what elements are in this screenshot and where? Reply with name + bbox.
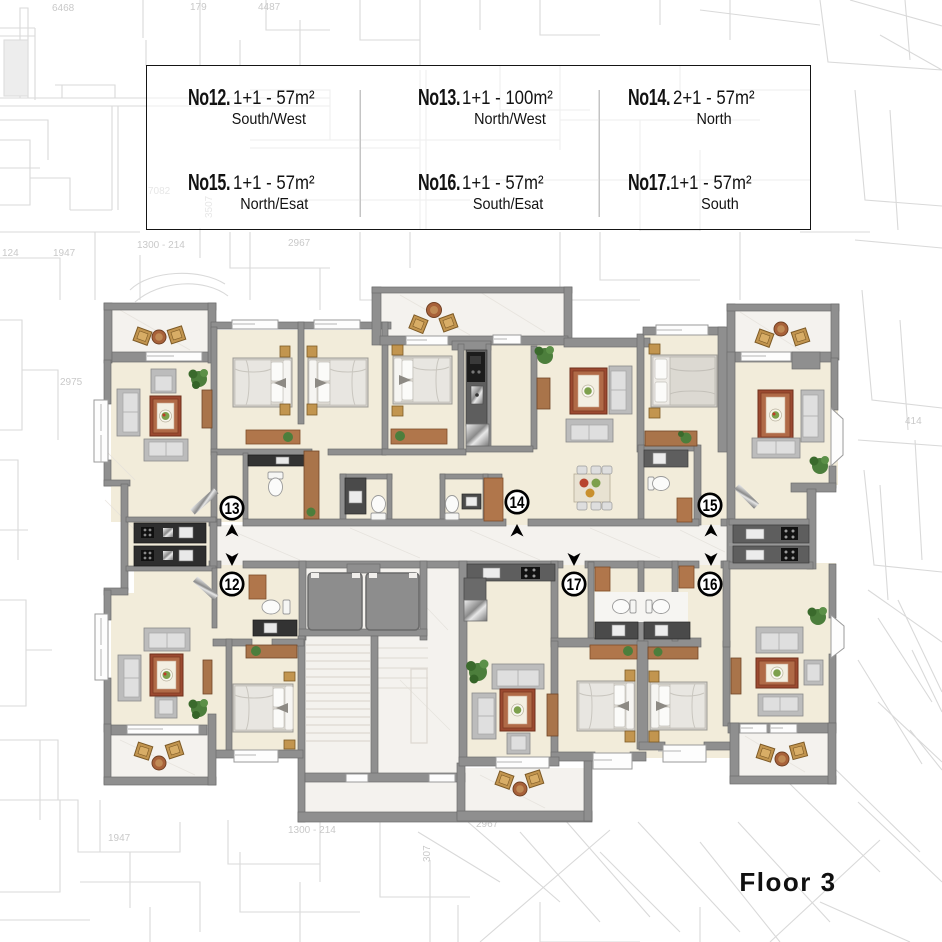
svg-text:16: 16 [703,576,718,594]
svg-text:307: 307 [422,845,433,862]
svg-text:2975: 2975 [60,377,83,388]
svg-text:179: 179 [190,2,207,13]
svg-text:4487: 4487 [258,2,281,13]
svg-text:6468: 6468 [52,3,75,14]
svg-text:17: 17 [567,576,582,594]
svg-text:14: 14 [510,494,526,512]
svg-text:13: 13 [225,500,240,518]
svg-text:1947: 1947 [108,833,131,844]
svg-text:2967: 2967 [288,238,311,249]
svg-text:414: 414 [905,416,922,427]
svg-text:1300 - 214: 1300 - 214 [137,240,185,251]
svg-text:1300 - 214: 1300 - 214 [288,825,336,836]
svg-text:1947: 1947 [53,248,76,259]
svg-text:124: 124 [2,248,19,259]
svg-text:15: 15 [703,497,718,515]
svg-text:12: 12 [225,576,240,594]
